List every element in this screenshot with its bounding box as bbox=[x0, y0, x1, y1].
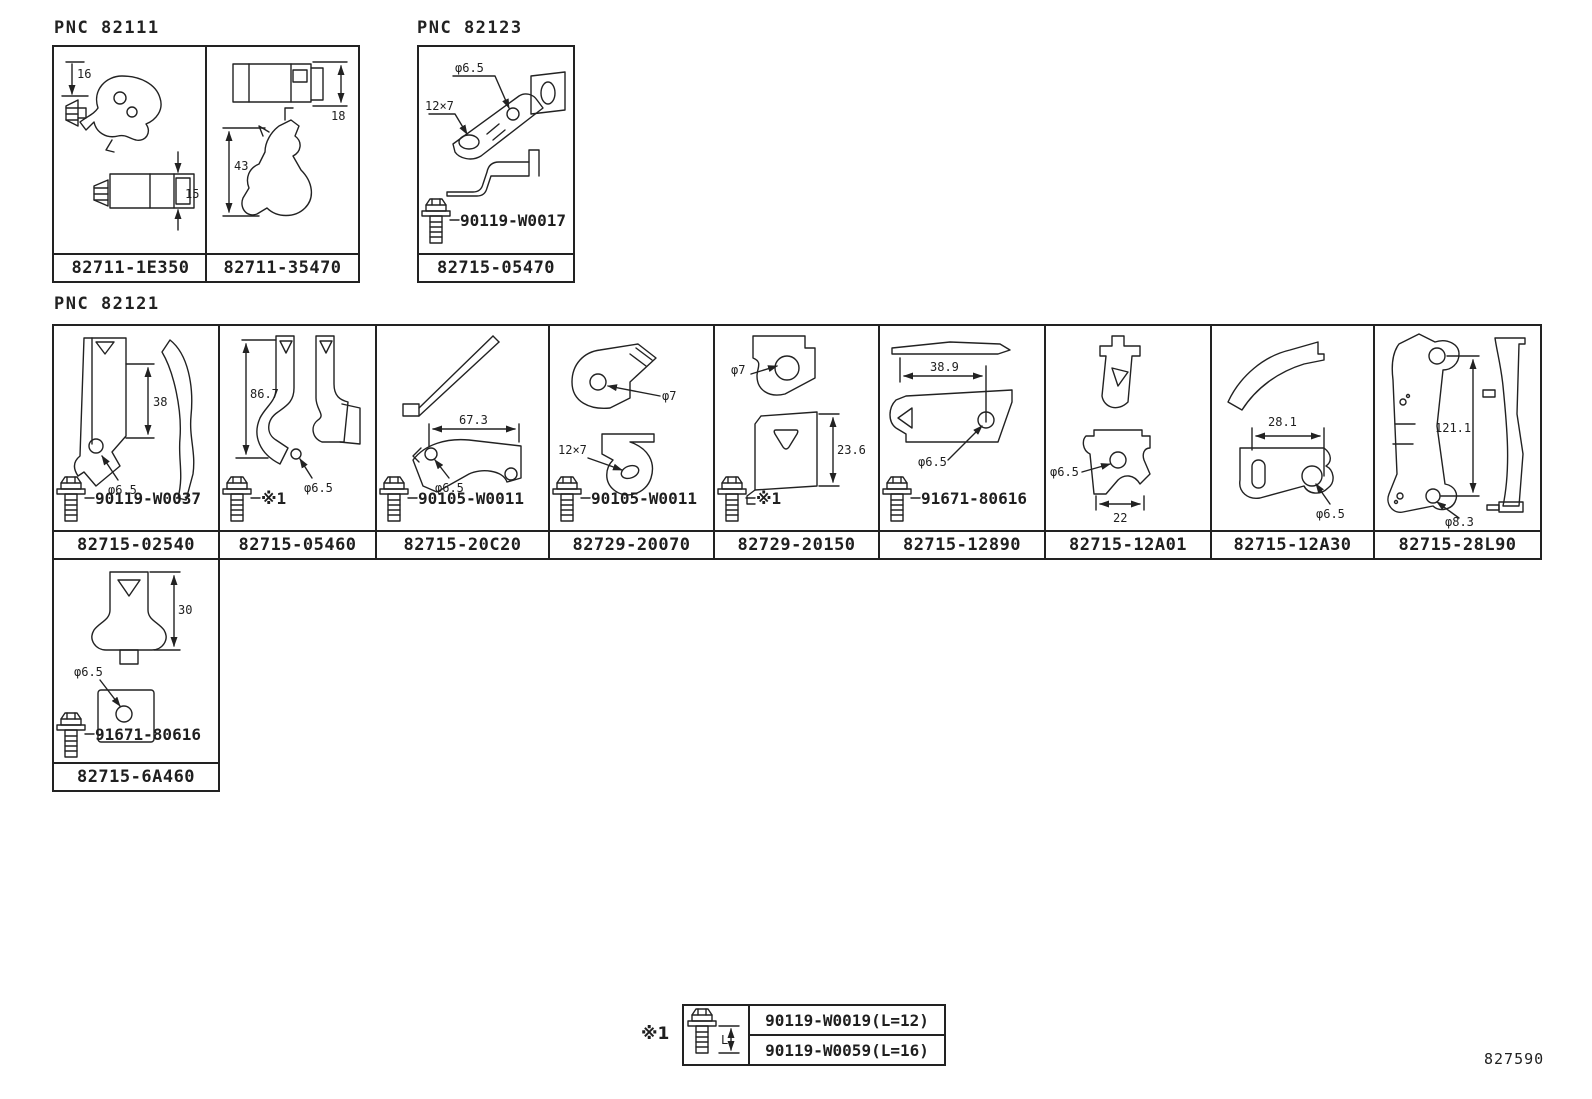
dimension-16: 16 bbox=[62, 62, 91, 96]
bolt-icon bbox=[57, 713, 85, 757]
bolt-icon bbox=[883, 477, 911, 521]
part-cell-82715-12A30: 28.1 φ6.5 82715-12A30 bbox=[1210, 324, 1375, 560]
part-drawing: 38.9 φ6.5 91671-80616 bbox=[880, 326, 1044, 530]
dimension-label: φ6.5 bbox=[918, 455, 947, 469]
fastener-row: 90119-W0017 bbox=[422, 199, 566, 243]
fastener-row: ※1 bbox=[718, 477, 781, 521]
part-number-band: 82715-12A01 bbox=[1046, 530, 1210, 558]
figure-number: 827590 bbox=[1484, 1050, 1544, 1068]
bolt-icon bbox=[718, 477, 746, 521]
plate-outline bbox=[890, 390, 1012, 442]
part-number-band: 82715-28L90 bbox=[1375, 530, 1540, 558]
dimension-label: 18 bbox=[331, 109, 345, 123]
dimension-label: φ6.5 bbox=[74, 665, 103, 679]
part-drawing: 18 43 bbox=[207, 47, 358, 253]
dimension-label: φ7 bbox=[662, 389, 676, 403]
part-number-band: 82729-20070 bbox=[550, 530, 713, 558]
bolt-length-option: 90119-W0019(L=12) bbox=[750, 1006, 944, 1034]
dimension-label: 28.1 bbox=[1268, 415, 1297, 429]
part-cell-82715-05460: 86.7 φ6.5 ※1 82715-05460 bbox=[218, 324, 377, 560]
bolt-icon bbox=[223, 477, 251, 521]
fastener-note-marker: ※1 bbox=[756, 489, 781, 508]
bolt-icon bbox=[553, 477, 581, 521]
pnc-group-label-82121: PNC 82121 bbox=[54, 294, 160, 314]
part-cell-82729-20150: φ7 23.6 ※1 bbox=[713, 324, 880, 560]
note-marker-label: ※1 bbox=[641, 1024, 669, 1044]
bolt-length-letter: L bbox=[721, 1033, 728, 1047]
part-cell-82715-6A460: 30 φ6.5 91671-80616 82715-6A460 bbox=[52, 558, 220, 792]
plate-outline bbox=[1240, 448, 1333, 498]
dimension-label: 43 bbox=[234, 159, 248, 173]
rod-outline bbox=[403, 336, 499, 416]
hook-clamp-outline bbox=[242, 108, 311, 216]
dimension-dia: φ6.5 bbox=[918, 426, 982, 469]
part-cell-82715-02540: 38 φ6.5 90119-W0037 82715-02540 bbox=[52, 324, 220, 560]
fastener-row: 90105-W0011 bbox=[553, 477, 697, 521]
dimension-dia-6-5: φ6.5 bbox=[453, 61, 509, 108]
part-number-band: 82715-6A460 bbox=[54, 762, 218, 790]
dimension-label: 12×7 bbox=[558, 443, 587, 457]
part-cell-82715-20C20: 67.3 φ6.5 90105-W0011 82715-20C20 bbox=[375, 324, 550, 560]
part-drawing: φ6.5 22 bbox=[1046, 326, 1210, 530]
dimension-label: 121.1 bbox=[1435, 421, 1471, 435]
fastener-part-number: 91671-80616 bbox=[95, 725, 201, 744]
part-number-band: 82715-05460 bbox=[220, 530, 375, 558]
pnc-group-label-82123: PNC 82123 bbox=[417, 18, 523, 38]
part-number-band: 82711-35470 bbox=[207, 253, 358, 281]
bolt-icon bbox=[688, 1009, 716, 1053]
dimension-label: 12×7 bbox=[425, 99, 454, 113]
bolt-length-option: 90119-W0059(L=16) bbox=[750, 1034, 944, 1064]
bracket-side-view bbox=[1483, 338, 1525, 512]
bolt-icon bbox=[422, 199, 450, 243]
dimension-label: 67.3 bbox=[459, 413, 488, 427]
dimension-label: φ7 bbox=[731, 363, 745, 377]
dimension-12x7: 12×7 bbox=[425, 99, 467, 134]
part-cell-82715-05470: φ6.5 12×7 90119-W0017 82715-05470 bbox=[417, 45, 575, 283]
part-number-band: 82715-12890 bbox=[880, 530, 1044, 558]
fastener-part-number: 90119-W0017 bbox=[460, 211, 566, 230]
dimension-label: φ8.3 bbox=[1445, 515, 1474, 529]
parts-diagram-page: PNC 82111 16 bbox=[0, 0, 1592, 1099]
dimension-dia: φ6.5 bbox=[74, 665, 120, 706]
bolt-icon bbox=[57, 477, 85, 521]
arm-outline bbox=[1228, 342, 1324, 410]
fastener-row: ※1 bbox=[223, 477, 286, 521]
bolt-length-diagram: L bbox=[684, 1006, 748, 1064]
dimension-label: 38.9 bbox=[930, 360, 959, 374]
dimension-label: 15 bbox=[185, 187, 199, 201]
part-cell-82711-35470: 18 43 82711-35470 bbox=[205, 45, 360, 283]
part-drawing: φ6.5 12×7 90119-W0017 bbox=[419, 47, 573, 253]
dimension-label: φ6.5 bbox=[304, 481, 333, 495]
clamp-outline bbox=[1083, 430, 1150, 494]
bracket-side-view bbox=[162, 340, 194, 500]
part-cell-82715-12890: 38.9 φ6.5 91671-80616 82715-12890 bbox=[878, 324, 1046, 560]
part-number-band: 82715-05470 bbox=[419, 253, 573, 281]
bolt-icon bbox=[380, 477, 408, 521]
fastener-part-number: 90105-W0011 bbox=[591, 489, 697, 508]
hook-outline bbox=[602, 434, 654, 495]
plate-top-outline bbox=[753, 336, 815, 395]
part-cell-82715-28L90: 121.1 φ8.3 82715-28L90 bbox=[1373, 324, 1542, 560]
part-number-band: 82715-02540 bbox=[54, 530, 218, 558]
part-number-band: 82715-20C20 bbox=[377, 530, 548, 558]
dimension-dia-7: φ7 bbox=[608, 386, 676, 403]
part-drawing: 86.7 φ6.5 ※1 bbox=[220, 326, 375, 530]
connector-outline bbox=[233, 64, 323, 102]
part-number-band: 82729-20150 bbox=[715, 530, 878, 558]
dimension-label: φ6.5 bbox=[1316, 507, 1345, 521]
bracket-top-outline bbox=[1100, 336, 1140, 408]
part-number-band: 82711-1E350 bbox=[54, 253, 207, 281]
bracket-outline bbox=[453, 72, 565, 159]
part-drawing: 30 φ6.5 91671-80616 bbox=[54, 560, 218, 762]
plate-outline bbox=[572, 344, 656, 408]
dimension-label: 23.6 bbox=[837, 443, 866, 457]
part-drawing: 121.1 φ8.3 bbox=[1375, 326, 1540, 530]
dimension-dia: φ6.5 bbox=[291, 449, 333, 495]
dimension-30: 30 bbox=[150, 572, 192, 650]
dimension-38: 38 bbox=[126, 364, 167, 438]
cylinder-clip-outline bbox=[94, 174, 194, 208]
bracket-view-b bbox=[313, 336, 360, 444]
dimension-label: 38 bbox=[153, 395, 167, 409]
part-cell-82729-20070: φ7 12×7 90105-W0011 82729-20070 bbox=[548, 324, 715, 560]
dimension-dia-7: φ7 bbox=[731, 363, 777, 377]
dimension-18: 18 bbox=[313, 62, 347, 123]
dimension-label: φ6.5 bbox=[1050, 465, 1079, 479]
bolt-length-diagram-cell: L bbox=[684, 1006, 750, 1064]
dimension-28-1: 28.1 bbox=[1252, 415, 1324, 476]
fastener-part-number: 91671-80616 bbox=[921, 489, 1027, 508]
part-drawing: 28.1 φ6.5 bbox=[1212, 326, 1373, 530]
bracket-outline bbox=[413, 440, 521, 492]
fastener-part-number: 90105-W0011 bbox=[418, 489, 524, 508]
part-drawing: φ7 23.6 ※1 bbox=[715, 326, 878, 530]
part-drawing: 16 bbox=[54, 47, 207, 253]
part-drawing: 67.3 φ6.5 90105-W0011 bbox=[377, 326, 548, 530]
dimension-dia: φ8.3 bbox=[1437, 502, 1474, 529]
dimension-12x7: 12×7 bbox=[558, 443, 622, 470]
dimension-15: 15 bbox=[178, 152, 199, 230]
fastener-part-number: 90119-W0037 bbox=[95, 489, 201, 508]
part-number-band: 82715-12A30 bbox=[1212, 530, 1373, 558]
dimension-22: 22 bbox=[1096, 496, 1144, 525]
fastener-note-marker: ※1 bbox=[261, 489, 286, 508]
blade-outline bbox=[892, 342, 1010, 354]
part-cell-82711-1E350: 16 bbox=[52, 45, 209, 283]
bracket-front-view bbox=[74, 338, 126, 486]
dimension-38-9: 38.9 bbox=[900, 358, 986, 422]
dimension-label: 22 bbox=[1113, 511, 1127, 525]
dimension-label: 16 bbox=[77, 67, 91, 81]
part-cell-82715-12A01: φ6.5 22 82715-12A01 bbox=[1044, 324, 1212, 560]
dimension-label: φ6.5 bbox=[455, 61, 484, 75]
fastener-row: 91671-80616 bbox=[883, 477, 1027, 521]
bolt-option-table: L 90119-W0019(L=12) 90119-W0059(L=16) bbox=[682, 1004, 946, 1066]
bolt-option-rows: 90119-W0019(L=12) 90119-W0059(L=16) bbox=[750, 1006, 944, 1064]
pnc-group-label-82111: PNC 82111 bbox=[54, 18, 160, 38]
dimension-23-6: 23.6 bbox=[819, 414, 866, 486]
dimension-dia: φ6.5 bbox=[1050, 464, 1110, 479]
part-drawing: 38 φ6.5 90119-W0037 bbox=[54, 326, 218, 530]
part-drawing: φ7 12×7 90105-W0011 bbox=[550, 326, 713, 530]
dimension-dia: φ6.5 bbox=[1316, 484, 1345, 521]
dimension-label: 86.7 bbox=[250, 387, 279, 401]
dimension-43: 43 bbox=[223, 128, 265, 216]
dimension-label: 30 bbox=[178, 603, 192, 617]
clip-outline bbox=[66, 76, 161, 152]
